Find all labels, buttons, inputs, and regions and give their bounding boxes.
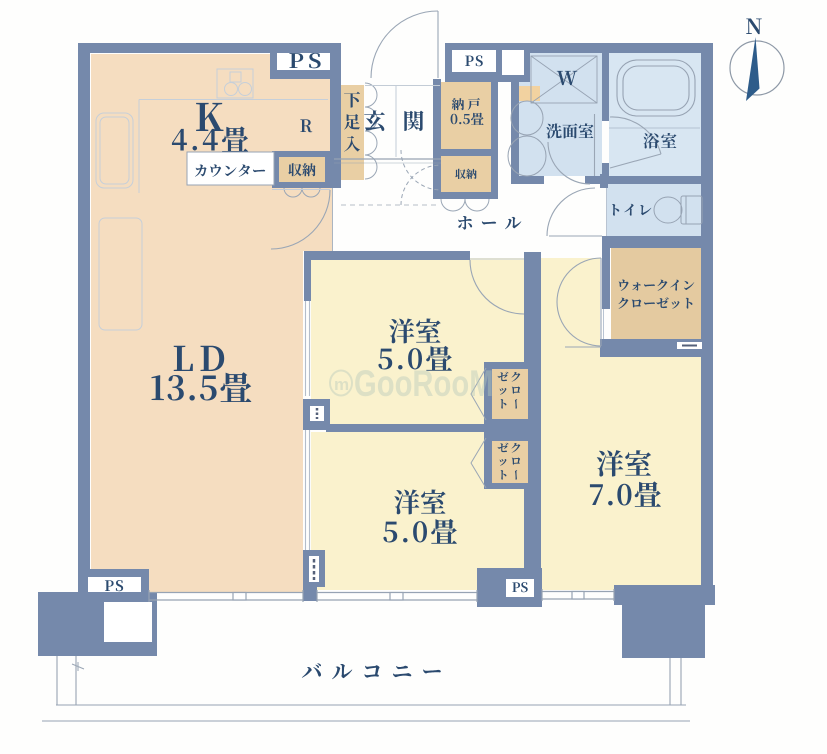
svg-text:m: m (334, 375, 349, 394)
svg-text:GooRooM: GooRooM (354, 364, 494, 405)
